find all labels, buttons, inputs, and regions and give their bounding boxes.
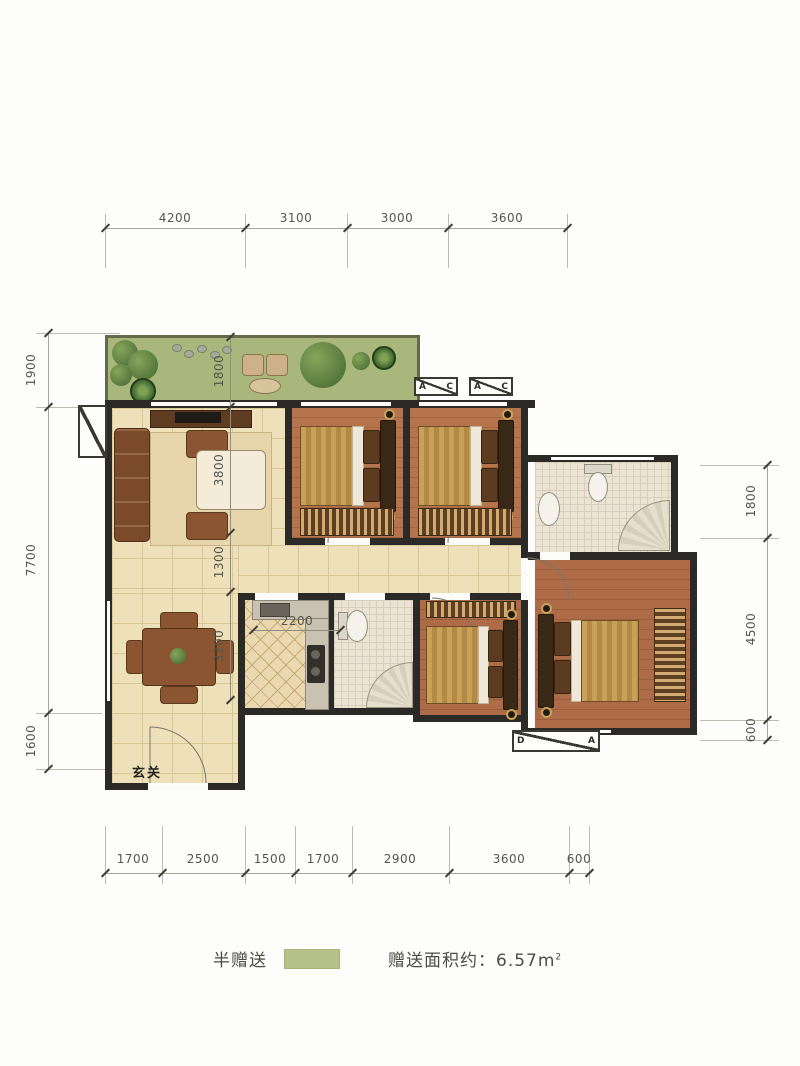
legend-gift-area-label: 赠送面积约： (388, 951, 496, 971)
dim-label: 600 (744, 718, 758, 742)
dim-label: 600 (567, 852, 591, 866)
balcony (105, 335, 420, 407)
window-tag: D A (512, 730, 600, 752)
pillow (363, 430, 380, 464)
window-tag-letter: A (588, 736, 595, 746)
wall (671, 455, 678, 560)
bed-headboard (498, 420, 514, 512)
dim-ext-line (245, 214, 246, 268)
bedroom1-door-gap (325, 538, 370, 545)
dim-ext-line (448, 214, 449, 268)
dim-line-right (767, 465, 768, 740)
dim-label: 3000 (381, 211, 414, 225)
entrance-door-gap (148, 783, 208, 790)
dim-line-left (48, 333, 49, 769)
burner (311, 667, 320, 676)
pillow (481, 430, 498, 464)
bedroom3-door-gap (430, 593, 470, 600)
pillow (363, 468, 380, 502)
dim-ext-line (162, 826, 163, 884)
bed-headboard (538, 614, 554, 708)
dim-label: 7700 (24, 544, 38, 577)
pillow (488, 630, 503, 662)
balcony-door-window (150, 401, 278, 407)
pebble (197, 345, 207, 353)
dim-label: 3800 (212, 454, 226, 487)
pillow (554, 660, 571, 694)
dim-label: 2500 (187, 852, 220, 866)
bathroom-sink (538, 492, 560, 526)
balcony-chair (242, 354, 264, 376)
toilet-bowl (346, 610, 368, 642)
ac-unit-tag (78, 405, 107, 458)
bedroom1-window (300, 401, 392, 407)
bedside-lamp (506, 609, 517, 620)
legend-half-gift-label: 半赠送 (213, 946, 267, 971)
legend-gift-area: 赠送面积约：6.57m2 (388, 946, 562, 971)
bathroom1-door-gap (540, 552, 570, 560)
tv (175, 412, 221, 423)
pebble (184, 350, 194, 358)
bed-blanket (426, 626, 480, 704)
wardrobe (418, 508, 512, 536)
legend-gift-area-unit: m (538, 951, 556, 971)
bedside-lamp (502, 409, 513, 420)
window-tag: A C (414, 377, 458, 396)
bedside-lamp (541, 603, 552, 614)
dim-label: 4200 (159, 211, 192, 225)
bathroom2-door-gap (345, 593, 385, 600)
dim-label: 1800 (212, 355, 226, 388)
window-tag-letter: C (501, 382, 508, 392)
dim-label: 4500 (744, 613, 758, 646)
dim-line-kitchen (253, 630, 340, 631)
dining-window (106, 600, 111, 702)
dim-label: 2200 (281, 614, 314, 628)
pillow (481, 468, 498, 502)
hallway-floor (238, 545, 521, 593)
coffee-table (196, 450, 266, 510)
dim-ext-line (105, 214, 106, 268)
pebble (172, 344, 182, 352)
window-tag: A C (469, 377, 513, 396)
dim-label: 1300 (212, 546, 226, 579)
wall (690, 552, 697, 735)
window-tag-letter: A (419, 382, 426, 392)
dim-ext-line (295, 826, 296, 884)
plant-bush (110, 364, 132, 386)
cooktop (307, 645, 325, 683)
dim-label: 1500 (254, 852, 287, 866)
dim-ext-line (352, 826, 353, 884)
wall (238, 708, 420, 715)
bed-blanket (300, 426, 354, 506)
pillow (488, 666, 503, 698)
wall (521, 400, 528, 560)
master-door-gap (521, 558, 528, 600)
wardrobe (426, 601, 516, 618)
dim-line-top (105, 228, 567, 229)
dim-label: 3100 (280, 211, 313, 225)
bed-blanket (418, 426, 472, 506)
bedside-lamp (541, 707, 552, 718)
dim-label: 1700 (117, 852, 150, 866)
bathroom1-window (550, 456, 655, 461)
wardrobe (654, 608, 686, 702)
dim-ext-line (347, 214, 348, 268)
balcony-table (249, 378, 281, 394)
window-tag-letter: D (517, 736, 524, 746)
entrance-label: 玄关 (132, 762, 162, 781)
wall (238, 593, 245, 715)
balcony-chair (266, 354, 288, 376)
sofa (114, 428, 150, 542)
bed-headboard (380, 420, 396, 512)
window-tag-letter: A (474, 382, 481, 392)
plant-bush (128, 350, 158, 380)
dim-ext-line (567, 214, 568, 268)
dim-label: 3600 (491, 211, 524, 225)
bedroom2-window (418, 401, 508, 407)
wall (413, 593, 420, 722)
wall (105, 400, 112, 790)
bedside-lamp (384, 409, 395, 420)
kitchen-door-gap (255, 593, 298, 600)
plant-bush (352, 352, 370, 370)
dim-label: 1600 (24, 725, 38, 758)
dim-ext-line (245, 826, 246, 884)
legend-gift-area-exponent: 2 (555, 952, 562, 962)
floorplan-sheet: 4200 3100 3000 3600 1700 2500 1500 1700 … (0, 0, 800, 1066)
wall (285, 408, 292, 545)
dining-chair (160, 686, 198, 704)
window-tag-letter: C (446, 382, 453, 392)
pillow (554, 622, 571, 656)
dim-label: 3600 (493, 852, 526, 866)
legend-gift-area-value: 6.57 (496, 951, 538, 971)
potted-plant (372, 346, 396, 370)
armchair (186, 512, 228, 540)
dim-label: 1700 (307, 852, 340, 866)
bed-blanket (581, 620, 639, 702)
legend-half-gift-swatch (284, 949, 340, 969)
bed-headboard (503, 620, 518, 710)
toilet-bowl (588, 472, 608, 502)
plant-tree (300, 342, 346, 388)
dim-line-interior (230, 337, 231, 700)
wall (403, 408, 410, 539)
dim-label: 3200 (212, 630, 226, 663)
dim-ext-line (105, 826, 106, 884)
wardrobe (300, 508, 394, 536)
dim-line-bottom (105, 873, 589, 874)
dim-label: 1900 (24, 354, 38, 387)
dim-ext-line (449, 826, 450, 884)
bedroom2-door-gap (445, 538, 490, 545)
dim-label: 2900 (384, 852, 417, 866)
dim-label: 1800 (744, 485, 758, 518)
burner (311, 650, 320, 659)
wall (238, 708, 245, 790)
table-plant (170, 648, 186, 664)
bedside-lamp (506, 709, 517, 720)
wall (285, 538, 528, 545)
